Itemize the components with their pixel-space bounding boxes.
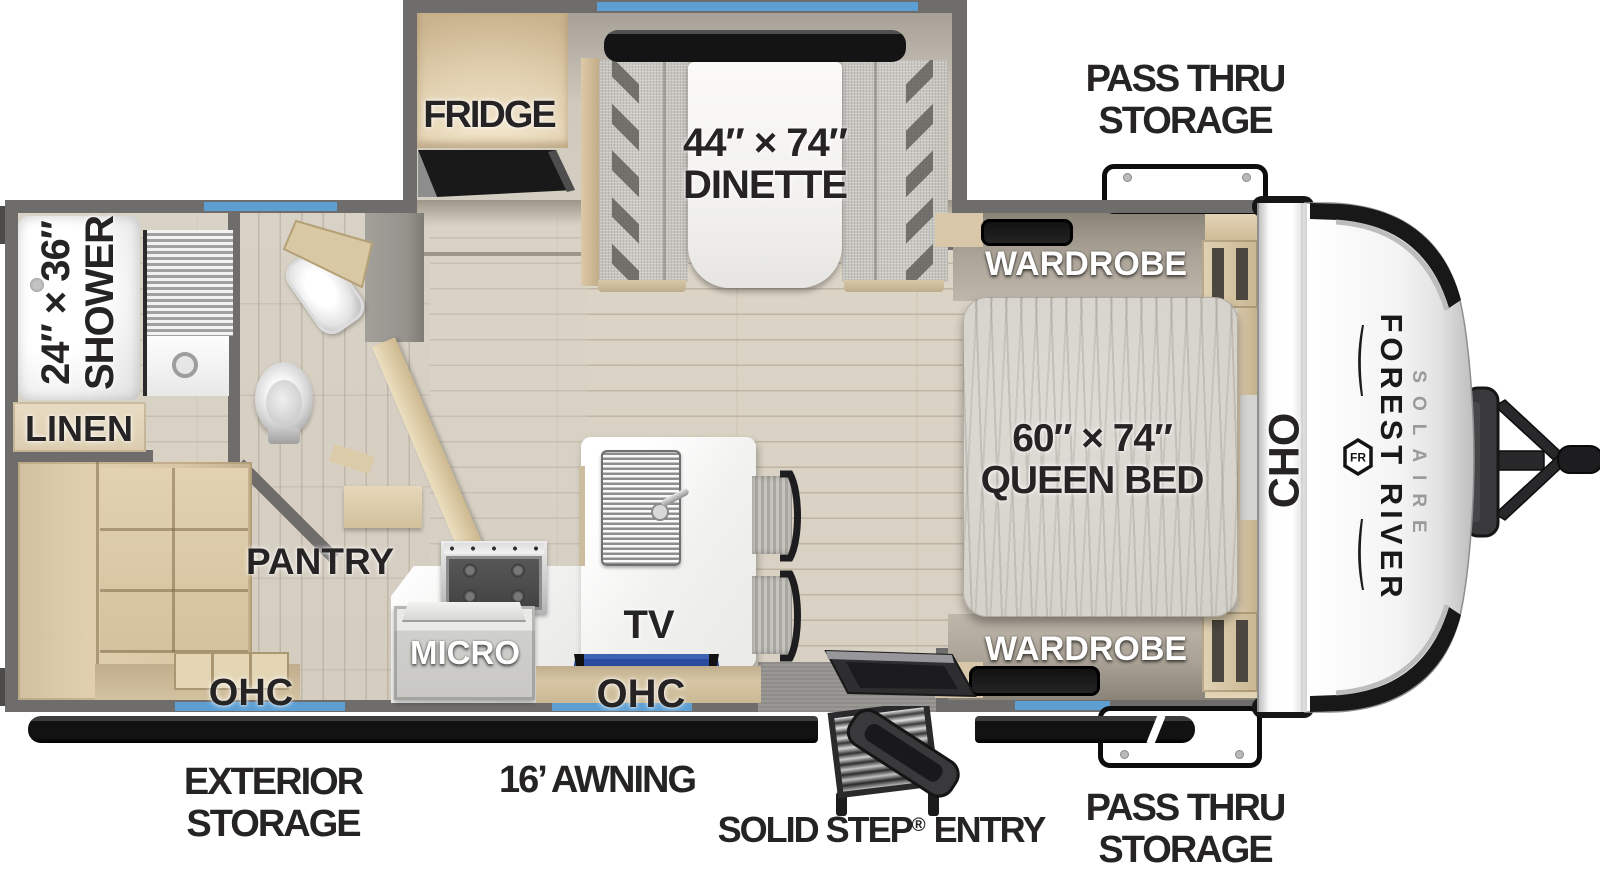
svg-text:FR: FR [1350, 451, 1366, 465]
svg-text:SOLAIRE: SOLAIRE [1408, 370, 1429, 545]
svg-text:FOREST RIVER: FOREST RIVER [1374, 313, 1409, 602]
